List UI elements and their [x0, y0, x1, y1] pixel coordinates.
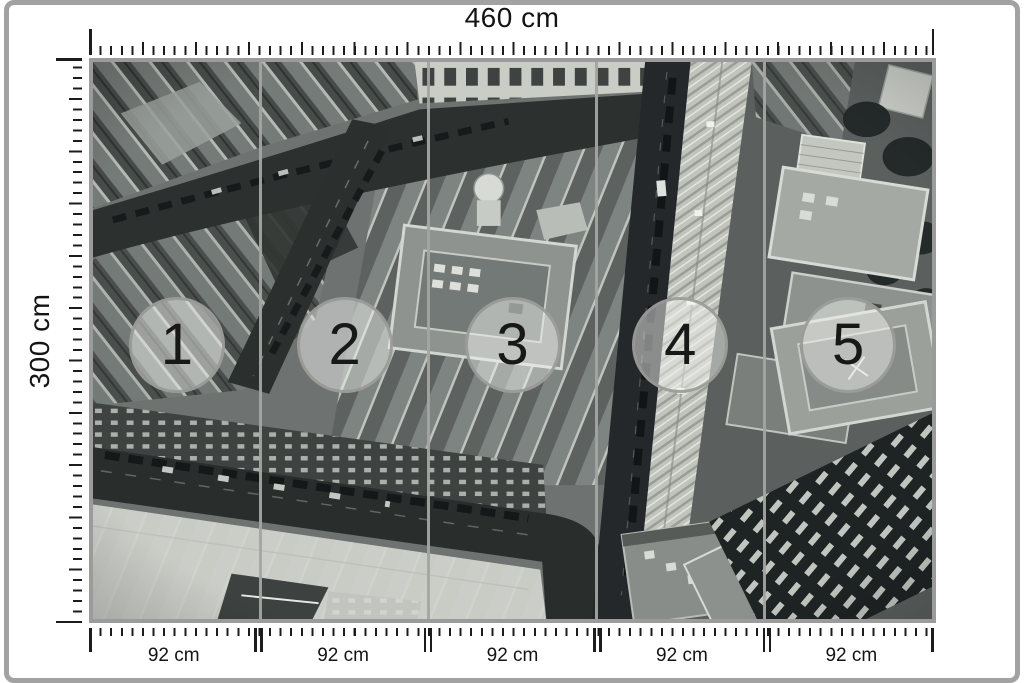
panel-divider-3-4 — [595, 62, 598, 619]
mural-photo-area: 1 2 3 4 5 — [89, 58, 936, 623]
panel-divider-1-2 — [259, 62, 262, 619]
panel-number-badge-2: 2 — [297, 297, 393, 393]
panel-width-label-5: 92 cm — [767, 645, 936, 667]
panel-number: 1 — [161, 316, 193, 374]
top-ruler — [89, 29, 936, 55]
panel-number: 3 — [496, 316, 528, 374]
panel-number-badge-5: 5 — [800, 297, 896, 393]
wall-mural-dimension-diagram: 460 cm 300 cm — [0, 0, 1024, 683]
panel-width-label-2: 92 cm — [258, 645, 427, 667]
panel-number-badge-4: 4 — [632, 297, 728, 393]
panel-width-label-4: 92 cm — [597, 645, 766, 667]
panel-width-label-3: 92 cm — [428, 645, 597, 667]
panel-number: 5 — [832, 316, 864, 374]
panel-width-label-1: 92 cm — [89, 645, 258, 667]
panel-number: 2 — [329, 316, 361, 374]
panel-divider-2-3 — [427, 62, 430, 619]
panel-number-badge-1: 1 — [129, 297, 225, 393]
total-height-label: 300 cm — [24, 286, 56, 396]
left-ruler — [56, 58, 82, 623]
panel-divider-4-5 — [763, 62, 766, 619]
panel-width-labels: 92 cm 92 cm 92 cm 92 cm 92 cm — [89, 645, 936, 667]
panel-number-badge-3: 3 — [465, 297, 561, 393]
panel-number: 4 — [664, 316, 696, 374]
